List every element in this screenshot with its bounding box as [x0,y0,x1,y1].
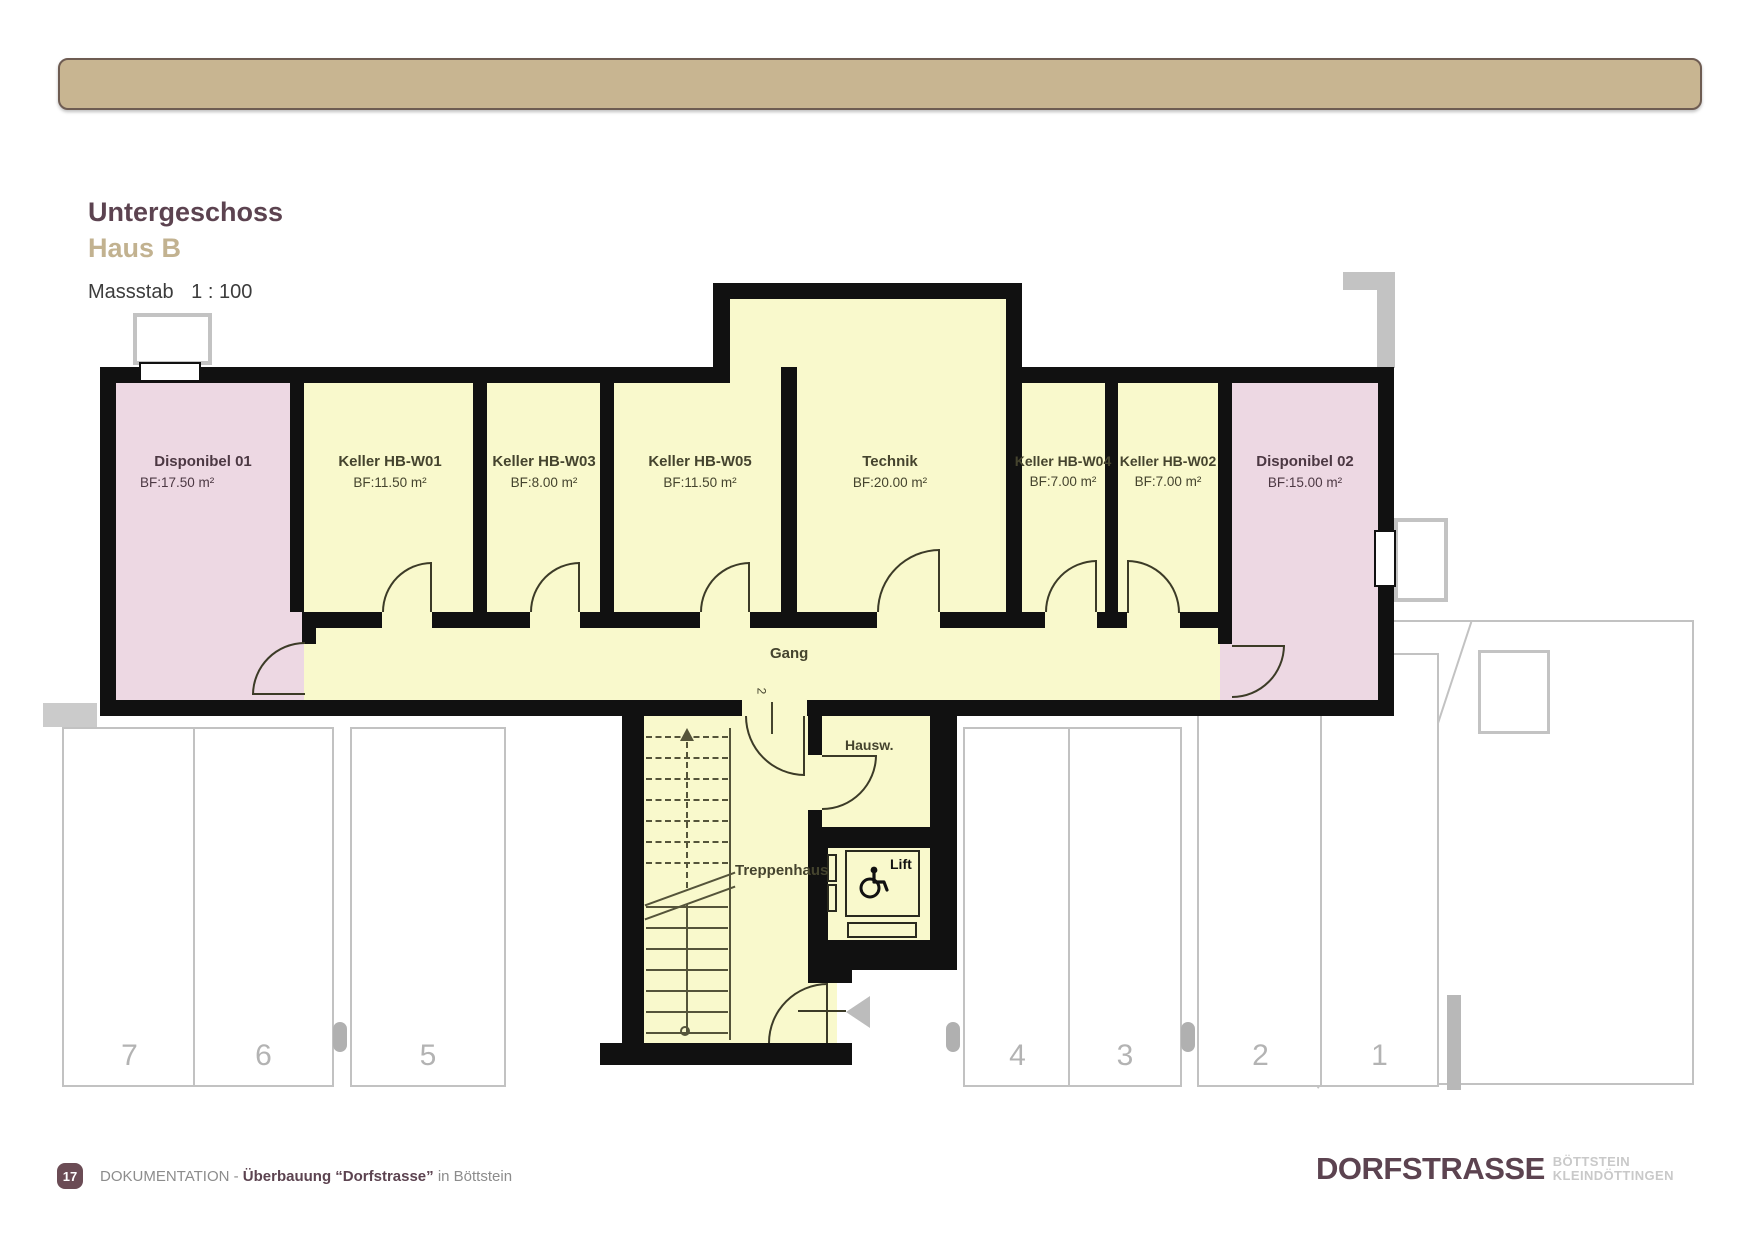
wall-segment [808,940,957,970]
parking-number: 7 [121,1039,138,1085]
driveway-top-line [1394,620,1694,622]
light-shaft-right [1478,650,1550,734]
wall-segment [808,1043,852,1065]
technik-bump-interior [730,299,1006,389]
page-number: 17 [63,1169,77,1184]
room-label-keller-hb-w05: Keller HB-W05 BF:11.50 m² [615,453,785,490]
header-bar [58,58,1702,110]
wheelchair-icon [856,864,892,900]
room-label-disponibel-02: Disponibel 02 BF:15.00 m² [1220,453,1390,490]
stair-newel-circle [680,1026,690,1036]
parking-space-6: 6 [193,727,334,1087]
footer-doc-label: DOKUMENTATION - [100,1168,243,1185]
stairs [646,728,730,1043]
wall-segment [713,283,730,383]
room-name: Technik [805,453,975,470]
driveway-right-line [1692,620,1694,1085]
driveway-bottom-line [1435,1083,1694,1085]
wall-segment [1105,367,1118,612]
room-name: Keller HB-W03 [459,453,629,470]
wall-segment [1378,367,1394,533]
wall-segment [807,700,1394,716]
footer-text: DOKUMENTATION - Überbauung “Dorfstrasse”… [100,1168,512,1185]
wall-segment [302,612,316,644]
room-name: Disponibel 01 [118,453,288,470]
parking-number: 3 [1117,1039,1134,1085]
caretaker-label: Hausw. [845,737,894,753]
door-number-label: 2 [754,688,768,695]
room-area: BF:17.50 m² [118,475,288,490]
ramp-wall-bar [1447,995,1461,1090]
lift-door-panel [827,884,837,912]
parking-number: 4 [1009,1039,1026,1085]
wall-segment [1022,367,1394,383]
page-subtitle: Haus B [88,233,181,264]
wall-segment [808,810,822,828]
wall-segment [1180,612,1218,628]
exit-axis-line [798,1010,846,1012]
stair-direction-arrow [680,728,694,741]
logo-sub-line1: BÖTTSTEIN [1553,1155,1674,1169]
stair-center-line-lower [686,904,688,1034]
wall-segment [1378,585,1394,716]
footer-page-badge: 17 [57,1163,83,1189]
logo-sub-line2: KLEINDÖTTINGEN [1553,1169,1674,1183]
door-number-tick [771,702,773,734]
wall-segment [808,970,852,983]
page-title: Untergeschoss [88,197,283,228]
wall-segment [290,367,304,612]
wall-segment [808,827,957,848]
parking-space-7: 7 [62,727,197,1087]
parking-number: 5 [420,1039,437,1085]
logo-sub: BÖTTSTEIN KLEINDÖTTINGEN [1553,1155,1674,1182]
exterior-wall-stub-left [43,703,97,727]
logo: DORFSTRASSE BÖTTSTEIN KLEINDÖTTINGEN [1316,1153,1674,1184]
room-area: BF:8.00 m² [459,475,629,490]
wall-segment [100,367,116,716]
room-label-keller-hb-w01: Keller HB-W01 BF:11.50 m² [305,453,475,490]
footer-project: Überbauung “Dorfstrasse” [243,1168,434,1185]
building-interior [116,383,1378,716]
lift-label: Lift [890,856,912,872]
logo-main: DORFSTRASSE [1316,1153,1545,1184]
wall-segment [100,700,742,716]
wall-segment [432,612,530,628]
document-page: Untergeschoss Haus B Massstab 1 : 100 7 … [0,0,1754,1241]
parking-number: 2 [1252,1039,1269,1085]
column-pill [1181,1022,1195,1052]
stair-center-line-upper [686,742,688,888]
wall-segment [940,612,1045,628]
wall-segment [713,283,1022,299]
footer-suffix: in Böttstein [434,1168,512,1185]
room-area: BF:15.00 m² [1220,475,1390,490]
wall-segment [808,716,822,755]
wall-segment [750,612,877,628]
room-label-keller-hb-w03: Keller HB-W03 BF:8.00 m² [459,453,629,490]
stair-edge-line [729,728,731,1040]
wall-segment [1097,612,1127,628]
exterior-step-top-right-v [1377,272,1395,368]
parking-space-1: 1 [1320,653,1439,1087]
parking-space-2: 2 [1197,653,1324,1087]
window-well-top-left [133,313,212,365]
room-label-technik: Technik BF:20.00 m² [805,453,975,490]
scale-value: 1 : 100 [191,281,252,303]
room-name: Keller HB-W01 [305,453,475,470]
stairwell-label: Treppenhaus [735,862,828,879]
room-name: Disponibel 02 [1220,453,1390,470]
room-area: BF:20.00 m² [805,475,975,490]
entrance-arrow-icon [846,996,870,1028]
parking-number: 1 [1371,1039,1388,1085]
corridor-label: Gang [770,645,808,662]
column-pill [946,1022,960,1052]
parking-space-5: 5 [350,727,506,1087]
window-top-left [139,362,201,382]
stair-break-line [645,886,736,921]
scale-label: Massstab [88,281,174,303]
lift-door-panel [827,854,837,882]
wall-segment [580,612,700,628]
window-right [1374,530,1396,587]
scale-row: Massstab 1 : 100 [88,281,252,304]
room-area: BF:11.50 m² [615,475,785,490]
room-name: Keller HB-W05 [615,453,785,470]
wall-segment [622,716,644,1065]
wall-segment [1218,612,1232,644]
room-area: BF:11.50 m² [305,475,475,490]
room-label-disponibel-01: Disponibel 01 BF:17.50 m² [118,453,288,490]
column-pill [333,1022,347,1052]
parking-space-4: 4 [963,727,1072,1087]
window-well-right [1394,518,1448,602]
parking-number: 6 [255,1039,272,1085]
lift-counterweight [847,922,917,938]
parking-space-3: 3 [1068,727,1182,1087]
